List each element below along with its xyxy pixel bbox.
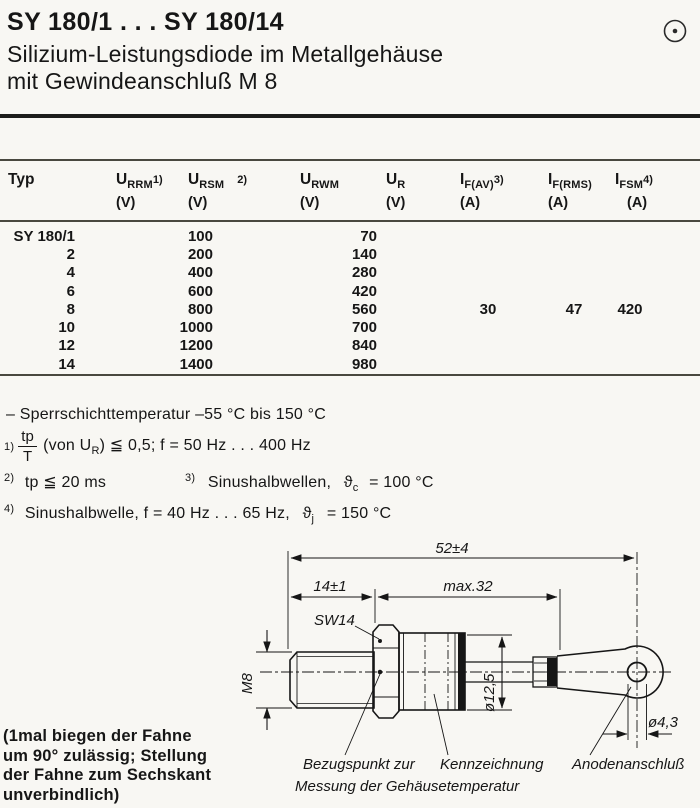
tp-over-T-fraction: tp T xyxy=(18,428,37,465)
footnote-1: 1) tp T (von UR) ≦ 0,5; f = 50 Hz . . . … xyxy=(4,428,311,465)
cell-ifav-shared: 30 xyxy=(466,301,510,318)
cell-urrm: 600 xyxy=(120,283,213,300)
cell-urwm: 70 xyxy=(300,228,377,245)
subtitle-line-1: Silizium-Leistungsdiode im Metallgehäuse xyxy=(7,41,443,68)
anode-connection-label: Anodenanschluß xyxy=(571,756,685,773)
marking-label: Kennzeichnung xyxy=(440,756,544,773)
header-divider xyxy=(0,114,700,118)
cell-urwm: 280 xyxy=(300,264,377,281)
cell-typ: 6 xyxy=(0,283,75,300)
cell-typ: SY 180/1 xyxy=(0,228,75,245)
wrench-size-label: SW14 xyxy=(314,612,355,629)
footnote-2: 2) tp ≦ 20 ms xyxy=(4,472,106,492)
footnote-4-marker: 4) xyxy=(4,503,14,515)
col-header-ur: UR (V) xyxy=(386,171,405,211)
page-subtitle: Silizium-Leistungsdiode im Metallgehäuse… xyxy=(7,41,443,95)
diode-outline-drawing: 52±4 14±1 max.32 SW14 M8 ø12,5 ø4,3 Bezu… xyxy=(238,540,700,808)
cell-urwm: 840 xyxy=(300,337,377,354)
junction-temperature-note: – Sperrschichttemperatur –55 °C bis 150 … xyxy=(6,406,326,424)
bending-note-line: der Fahne zum Sechskant xyxy=(3,766,211,786)
cell-typ: 4 xyxy=(0,264,75,281)
table-row: 2 200 140 xyxy=(0,246,700,264)
cell-urrm: 1200 xyxy=(120,337,213,354)
reference-point-label-line2: Messung der Gehäusetemperatur xyxy=(295,778,520,795)
footnote-2-marker: 2) xyxy=(4,472,14,484)
cell-urrm: 800 xyxy=(120,301,213,318)
reference-point-dot xyxy=(378,670,383,675)
table-row: 10 1000 700 xyxy=(0,319,700,337)
col-header-typ: Typ xyxy=(8,171,34,189)
table-header-rule xyxy=(0,220,700,222)
bending-note-line: unverbindlich) xyxy=(3,786,211,806)
dim-stud-label: 14±1 xyxy=(313,578,346,595)
footnote-4: 4) Sinushalbwelle, f = 40 Hz . . . 65 Hz… xyxy=(4,503,391,526)
cell-urrm: 100 xyxy=(120,228,213,245)
dim-overall-label: 52±4 xyxy=(435,540,468,557)
body-diameter-label: ø12,5 xyxy=(481,673,498,712)
page-title: SY 180/1 . . . SY 180/14 xyxy=(7,8,284,37)
cell-ifrms-shared: 47 xyxy=(552,301,596,318)
cell-urwm: 140 xyxy=(300,246,377,263)
anode-leader xyxy=(590,687,631,755)
hex-flats xyxy=(373,625,399,718)
table-bottom-rule xyxy=(0,374,700,376)
table-row: 6 600 420 xyxy=(0,283,700,301)
table-row: 12 1200 840 xyxy=(0,337,700,355)
cell-urrm: 200 xyxy=(120,246,213,263)
footnote-3: 3) Sinushalbwellen, ϑc = 100 °C xyxy=(185,472,434,495)
col-header-ifrms: IF(RMS) (A) xyxy=(548,171,592,211)
bending-note-line: um 90° zulässig; Stellung xyxy=(3,747,211,767)
cell-urwm: 980 xyxy=(300,356,377,373)
thread-label: M8 xyxy=(239,673,256,694)
table-top-rule xyxy=(0,159,700,161)
hole-diameter-label: ø4,3 xyxy=(648,714,679,731)
threaded-stud xyxy=(290,652,374,708)
footnote-3-marker: 3) xyxy=(185,472,195,484)
reference-point-label-line1: Bezugspunkt zur xyxy=(303,756,416,773)
marking-leader xyxy=(434,694,448,755)
table-row: SY 180/1 100 70 xyxy=(0,228,700,246)
footnote-1-marker: 1) xyxy=(4,441,14,453)
cell-urrm: 1400 xyxy=(120,356,213,373)
cell-urrm: 1000 xyxy=(120,319,213,336)
cell-urwm: 420 xyxy=(300,283,377,300)
sw14-leader xyxy=(355,626,379,639)
col-header-urwm: URWM (V) xyxy=(300,171,339,211)
datasheet-page: SY 180/1 . . . SY 180/14 Silizium-Leistu… xyxy=(0,0,700,808)
bending-note-line: (1mal biegen der Fahne xyxy=(3,727,211,747)
cell-ifsm-shared: 420 xyxy=(608,301,652,318)
dim-body-label: max.32 xyxy=(443,578,493,595)
cell-typ: 14 xyxy=(0,356,75,373)
table-row: 14 1400 980 xyxy=(0,356,700,374)
cell-typ: 12 xyxy=(0,337,75,354)
cell-typ: 8 xyxy=(0,301,75,318)
col-header-ifsm: IFSM4) (A) xyxy=(615,171,653,211)
cell-urwm: 700 xyxy=(300,319,377,336)
table-row: 4 400 280 xyxy=(0,264,700,282)
subtitle-line-2: mit Gewindeanschluß M 8 xyxy=(7,68,443,95)
col-header-ursm: URSM2) (V) xyxy=(188,171,247,211)
cell-typ: 2 xyxy=(0,246,75,263)
cell-typ: 10 xyxy=(0,319,75,336)
circled-dot-icon xyxy=(661,17,689,45)
cell-urrm: 400 xyxy=(120,264,213,281)
cell-urwm: 560 xyxy=(300,301,377,318)
col-header-urrm: URRM1) (V) xyxy=(116,171,163,211)
bending-note: (1mal biegen der Fahne um 90° zulässig; … xyxy=(3,727,211,805)
col-header-ifav: IF(AV)3) (A) xyxy=(460,171,504,211)
reference-point-leader xyxy=(345,674,380,755)
